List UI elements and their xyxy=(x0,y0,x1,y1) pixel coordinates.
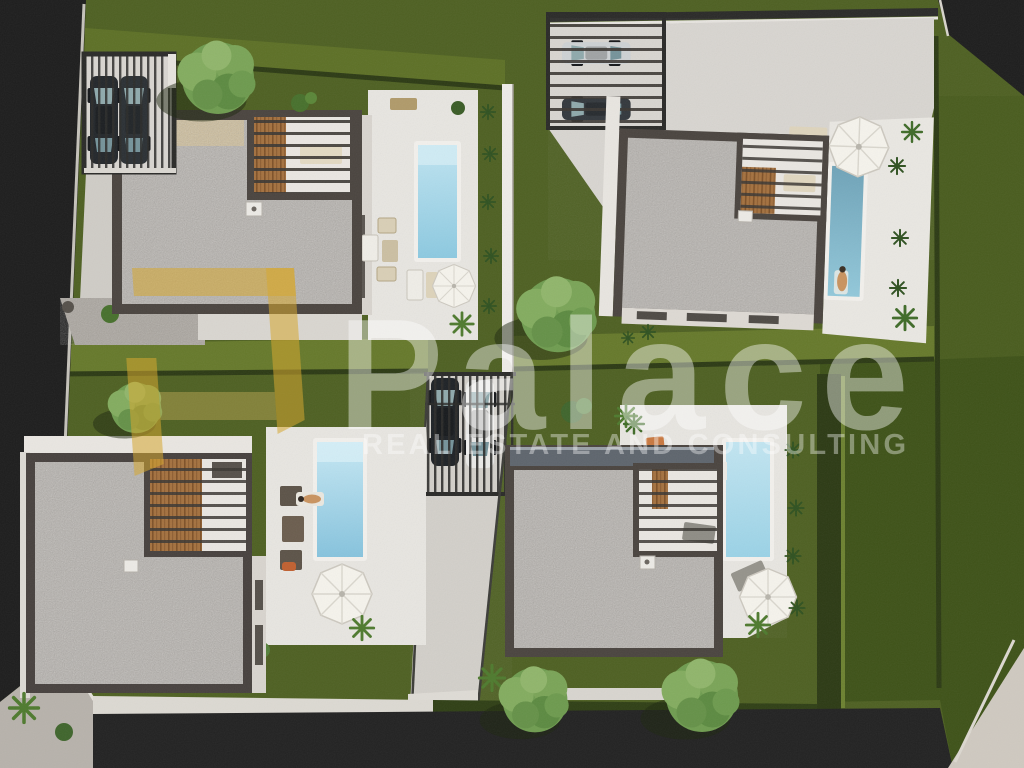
scene-canvas xyxy=(0,0,1024,768)
logo-bar-connector xyxy=(159,392,277,420)
aerial-render: Palace REAL ESTATE AND CONSULTING xyxy=(0,0,1024,768)
